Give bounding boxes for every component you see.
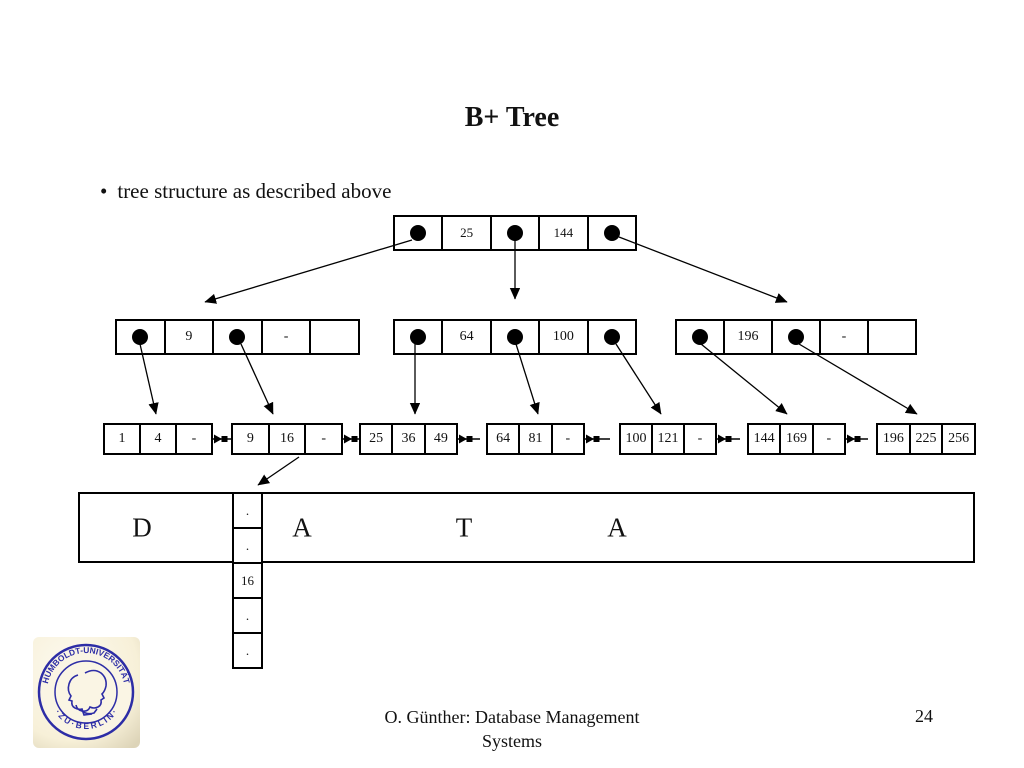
pointer-cell (587, 321, 635, 353)
footer-caption: O. Günther: Database Management Systems (262, 705, 762, 753)
pointer-dot-icon (604, 329, 620, 345)
leaf-chain-pointer (458, 435, 480, 444)
btree-internal-node-middle: 64 100 (393, 319, 637, 355)
empty-cell (309, 321, 358, 353)
bullet-text: tree structure as described above (117, 179, 391, 203)
leaf-chain-pointer (717, 435, 740, 444)
pointer-dot-icon (410, 225, 426, 241)
key-cell: 64 (441, 321, 489, 353)
key-cell: 25 (441, 217, 489, 249)
data-letter: T (456, 512, 473, 543)
arrow-root-to-right (619, 237, 787, 302)
pointer-cell (395, 217, 441, 249)
key-cell: 256 (941, 425, 974, 453)
pointer-dot-icon (604, 225, 620, 241)
humboldt-university-seal-logo: HUMBOLDT-UNIVERSITÄT · Z U · B E R L I N… (33, 637, 140, 748)
btree-leaf-node-6: 144 169 - (747, 423, 846, 455)
key-cell: 144 (749, 425, 779, 453)
key-cell: - (683, 425, 715, 453)
pointer-dot-icon (132, 329, 148, 345)
footer-line2: Systems (262, 729, 762, 753)
bullet-marker: • (100, 179, 107, 203)
key-cell: - (261, 321, 310, 353)
key-cell: 100 (538, 321, 586, 353)
pointer-cell (587, 217, 635, 249)
key-cell: - (304, 425, 341, 453)
btree-leaf-node-7: 196 225 256 (876, 423, 976, 455)
empty-cell (867, 321, 915, 353)
btree-leaf-node-5: 100 121 - (619, 423, 717, 455)
record-cell: . (234, 597, 261, 632)
leaf-chain-pointer (213, 435, 231, 444)
key-cell: - (175, 425, 211, 453)
pointer-cell (395, 321, 441, 353)
pointer-cell (212, 321, 261, 353)
pointer-dot-icon (692, 329, 708, 345)
key-cell: 225 (909, 425, 942, 453)
key-cell: 169 (779, 425, 811, 453)
arrow-root-to-left (205, 240, 412, 302)
key-cell: 9 (233, 425, 268, 453)
page-number: 24 (915, 706, 933, 727)
key-cell: - (812, 425, 844, 453)
pointer-dot-icon (788, 329, 804, 345)
pointer-cell (490, 321, 538, 353)
key-cell: 25 (361, 425, 391, 453)
record-cell: . (234, 494, 261, 527)
record-cell: 16 (234, 562, 261, 597)
leaf-chain-pointer (846, 435, 868, 444)
data-letter: A (292, 512, 312, 543)
btree-internal-node-right: 196 - (675, 319, 917, 355)
key-cell: - (551, 425, 583, 453)
bullet-line: •tree structure as described above (100, 179, 391, 204)
key-cell: 81 (518, 425, 550, 453)
pointer-cell (677, 321, 723, 353)
key-cell: 144 (538, 217, 586, 249)
key-cell: 196 (878, 425, 909, 453)
key-cell: 16 (268, 425, 305, 453)
pointer-cell (771, 321, 819, 353)
pointer-cell (117, 321, 164, 353)
page-title: B+ Tree (0, 102, 1024, 134)
key-cell: 121 (651, 425, 683, 453)
pointer-dot-icon (507, 225, 523, 241)
key-cell: 196 (723, 321, 771, 353)
btree-leaf-node-1: 1 4 - (103, 423, 213, 455)
pointer-dot-icon (507, 329, 523, 345)
pointer-cell (490, 217, 538, 249)
btree-leaf-node-3: 25 36 49 (359, 423, 458, 455)
key-cell: 9 (164, 321, 213, 353)
arrow-leaf2-to-records (258, 457, 299, 485)
key-cell: 100 (621, 425, 651, 453)
btree-internal-node-left: 9 - (115, 319, 360, 355)
pointer-dot-icon (229, 329, 245, 345)
key-cell: 64 (488, 425, 518, 453)
key-cell: - (819, 321, 867, 353)
data-file-rect: D A T A (78, 492, 975, 563)
key-cell: 49 (424, 425, 456, 453)
footer-line1: O. Günther: Database Management (262, 705, 762, 729)
key-cell: 4 (139, 425, 175, 453)
key-cell: 1 (105, 425, 139, 453)
btree-root-node: 25 144 (393, 215, 637, 251)
data-letter: D (132, 512, 152, 543)
record-cell: . (234, 527, 261, 562)
key-cell: 36 (391, 425, 423, 453)
leaf-chain-pointer (585, 435, 610, 444)
data-letter: A (607, 512, 627, 543)
pointer-dot-icon (410, 329, 426, 345)
btree-leaf-node-4: 64 81 - (486, 423, 585, 455)
btree-leaf-node-2: 9 16 - (231, 423, 343, 455)
record-cell: . (234, 632, 261, 667)
record-column: . . 16 . . (232, 492, 263, 669)
leaf-chain-pointer (343, 435, 359, 444)
